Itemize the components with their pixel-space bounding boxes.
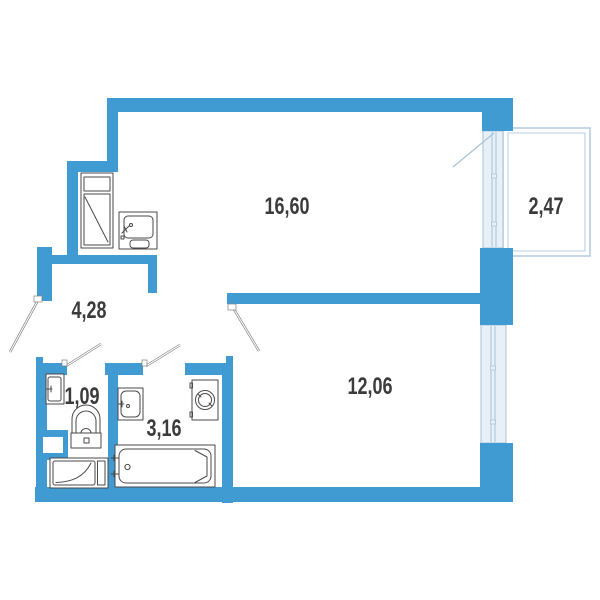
fridge-icon [81, 173, 113, 248]
wall-segment [226, 356, 233, 364]
wall-segment [52, 255, 157, 264]
door-hinge [228, 304, 236, 310]
washing-machine-icon [190, 380, 218, 420]
bathtub-icon [111, 445, 215, 487]
wall-segment [107, 98, 118, 172]
balcony-outline [503, 128, 590, 256]
wall-segment [67, 161, 78, 256]
floor-plan-canvas: 16,60 2,47 4,28 1,09 3,16 12,06 [0, 0, 600, 600]
window-frame [481, 325, 506, 443]
balcony-door-window [453, 131, 503, 248]
kitchen-sink-icon [119, 212, 157, 249]
room-label-wc: 1,09 [64, 384, 99, 410]
wall-segment [35, 487, 513, 502]
bathroom-sink-icon [118, 388, 143, 420]
walls [35, 98, 513, 503]
wall-segment [185, 363, 233, 375]
window-divider [491, 366, 496, 370]
door-hinge [142, 360, 147, 366]
door-swing-entrance [10, 296, 42, 352]
wall-segment [37, 247, 52, 301]
toilet-icon [71, 405, 101, 448]
room-label-bathroom: 3,16 [146, 416, 181, 442]
room-label-balcony: 2,47 [528, 194, 563, 220]
wall-segment [107, 98, 513, 112]
wall-segment [480, 248, 513, 325]
door-hinge [34, 296, 42, 302]
room-label-living-kitchen: 16,60 [264, 194, 309, 220]
wall-segment [227, 293, 480, 304]
bedroom-window [481, 325, 506, 443]
balcony-outer-edge [503, 128, 590, 256]
window-divider [492, 174, 497, 178]
window-frame [483, 131, 503, 248]
window-divider [491, 420, 496, 424]
shower-tray-icon [50, 458, 108, 488]
room-label-hallway: 4,28 [71, 298, 106, 324]
door-swing-bedroom [228, 304, 259, 351]
washbasin-icon [46, 374, 64, 404]
wall-segment [36, 357, 43, 364]
wall-segment [148, 255, 157, 293]
ventilation-shaft [43, 437, 63, 453]
window-divider [492, 222, 497, 226]
wall-segment [482, 112, 513, 131]
door-hinge [62, 360, 67, 366]
door-swing-wc [62, 344, 101, 366]
floor-plan: 16,60 2,47 4,28 1,09 3,16 12,06 [0, 0, 600, 600]
room-label-bedroom: 12,06 [347, 374, 392, 400]
door-swing-bathroom [142, 345, 180, 366]
wall-segment [222, 363, 233, 503]
